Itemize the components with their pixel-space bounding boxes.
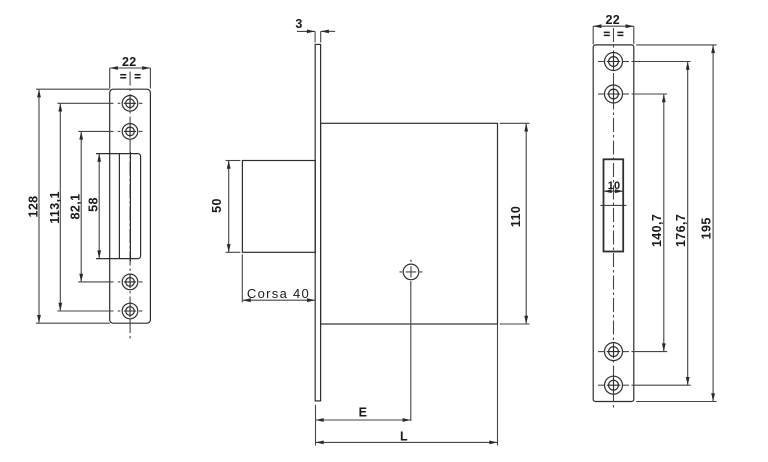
svg-text:50: 50 xyxy=(210,198,224,213)
svg-text:128: 128 xyxy=(27,195,41,217)
svg-text:22: 22 xyxy=(122,55,137,69)
svg-text:110: 110 xyxy=(509,206,523,227)
svg-text:140,7: 140,7 xyxy=(650,214,664,247)
svg-text:82,1: 82,1 xyxy=(69,194,83,220)
svg-text:E: E xyxy=(359,406,368,420)
svg-text:176,7: 176,7 xyxy=(674,214,688,247)
svg-text:113,1: 113,1 xyxy=(48,191,62,224)
svg-text:Corsa 40: Corsa 40 xyxy=(247,286,310,301)
svg-text:195: 195 xyxy=(699,217,713,239)
svg-text:22: 22 xyxy=(605,13,620,27)
svg-text:L: L xyxy=(400,429,408,443)
svg-text:58: 58 xyxy=(87,197,101,212)
svg-text:3: 3 xyxy=(295,17,302,31)
svg-text:10: 10 xyxy=(608,180,621,192)
